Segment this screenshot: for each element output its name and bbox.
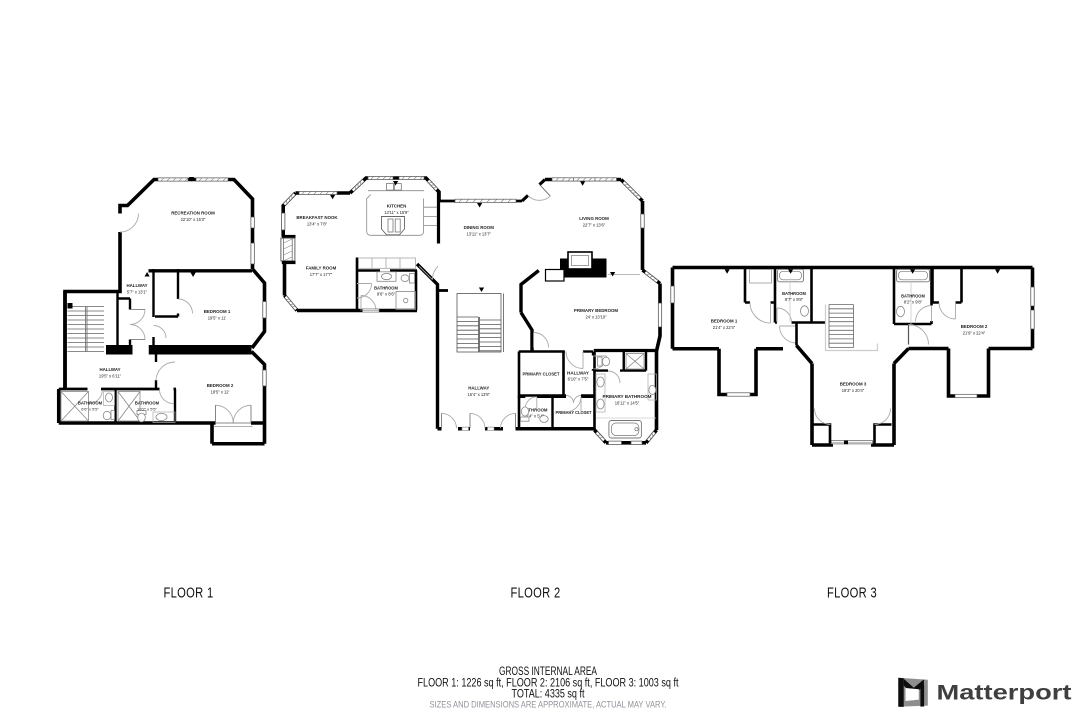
svg-text:FLOOR 3: FLOOR 3: [827, 586, 877, 602]
svg-text:19'3" x 20'4": 19'3" x 20'4": [842, 388, 865, 393]
svg-text:BEDROOM 1: BEDROOM 1: [204, 309, 231, 314]
svg-text:BEDROOM 2: BEDROOM 2: [207, 383, 234, 388]
svg-text:8'2" x 9'8": 8'2" x 9'8": [904, 300, 923, 305]
svg-text:LIVING ROOM: LIVING ROOM: [579, 216, 609, 221]
svg-text:PRIMARY CLOSET: PRIMARY CLOSET: [556, 410, 592, 415]
svg-text:BEDROOM 2: BEDROOM 2: [961, 324, 988, 329]
svg-text:BATHROOM: BATHROOM: [901, 294, 925, 299]
svg-text:BATHROOM: BATHROOM: [78, 401, 103, 406]
svg-text:SIZES AND DIMENSIONS ARE APPRO: SIZES AND DIMENSIONS ARE APPROXIMATE, AC…: [430, 700, 667, 710]
svg-text:5'7" x 13'1": 5'7" x 13'1": [127, 290, 148, 295]
svg-text:HALLWAY: HALLWAY: [99, 367, 120, 372]
svg-text:HALLWAY: HALLWAY: [567, 371, 589, 376]
svg-text:KITCHEN: KITCHEN: [387, 204, 407, 209]
svg-text:13'4" x 7'8": 13'4" x 7'8": [307, 222, 328, 227]
svg-text:21'4" x 22'4": 21'4" x 22'4": [713, 325, 736, 330]
svg-text:BATHROOM: BATHROOM: [135, 401, 160, 406]
svg-text:9'7" x 9'8": 9'7" x 9'8": [785, 297, 804, 302]
svg-text:16'11" x 14'5": 16'11" x 14'5": [615, 401, 640, 406]
svg-text:BREAKFAST NOOK: BREAKFAST NOOK: [296, 215, 338, 220]
svg-text:13'11" x 15'9": 13'11" x 15'9": [384, 210, 409, 215]
svg-text:BEDROOM 1: BEDROOM 1: [711, 319, 738, 324]
svg-text:19'5" x 6'11": 19'5" x 6'11": [99, 374, 122, 379]
svg-text:21'9" x 22'4": 21'9" x 22'4": [963, 331, 986, 336]
svg-text:PRIMARY BEDROOM: PRIMARY BEDROOM: [574, 308, 618, 313]
svg-text:FLOOR 2: FLOOR 2: [511, 586, 561, 602]
svg-text:13'11" x 13'7": 13'11" x 13'7": [467, 232, 492, 237]
svg-text:18'5" x 12': 18'5" x 12': [211, 390, 230, 395]
svg-text:DINING ROOM: DINING ROOM: [464, 225, 495, 230]
svg-text:16'4" x 13'8": 16'4" x 13'8": [468, 392, 491, 397]
svg-text:RECREATION ROOM: RECREATION ROOM: [171, 211, 215, 216]
svg-text:HALLWAY: HALLWAY: [468, 386, 489, 391]
svg-text:GROSS INTERNAL AREA: GROSS INTERNAL AREA: [499, 666, 597, 678]
svg-text:BEDROOM 3: BEDROOM 3: [840, 382, 867, 387]
svg-text:Matterport: Matterport: [937, 681, 1072, 705]
svg-text:HALLWAY: HALLWAY: [126, 283, 147, 288]
svg-text:17'7" x 17'7": 17'7" x 17'7": [310, 272, 333, 277]
svg-text:6'6" x 5'5": 6'6" x 5'5": [81, 407, 99, 412]
svg-text:19'5" x 11': 19'5" x 11': [208, 316, 227, 321]
svg-text:PRIMARY BATHROOM: PRIMARY BATHROOM: [603, 394, 652, 399]
svg-text:FAMILY ROOM: FAMILY ROOM: [306, 266, 337, 271]
svg-text:BATHROOM: BATHROOM: [782, 291, 806, 296]
svg-text:22'10" x 15'3": 22'10" x 15'3": [181, 217, 206, 222]
svg-text:6'10" x 7'5": 6'10" x 7'5": [568, 377, 589, 382]
svg-text:24' x 13'10": 24' x 13'10": [586, 315, 608, 320]
svg-text:22'7" x 13'6": 22'7" x 13'6": [583, 223, 606, 228]
svg-text:PRIMARY CLOSET: PRIMARY CLOSET: [523, 372, 560, 377]
svg-text:BATHROOM: BATHROOM: [374, 286, 398, 291]
svg-text:FLOOR 1: FLOOR 1: [164, 586, 214, 602]
svg-text:10'2" x 5'5": 10'2" x 5'5": [137, 407, 157, 412]
svg-text:9'6" x 8'6": 9'6" x 8'6": [377, 292, 396, 297]
